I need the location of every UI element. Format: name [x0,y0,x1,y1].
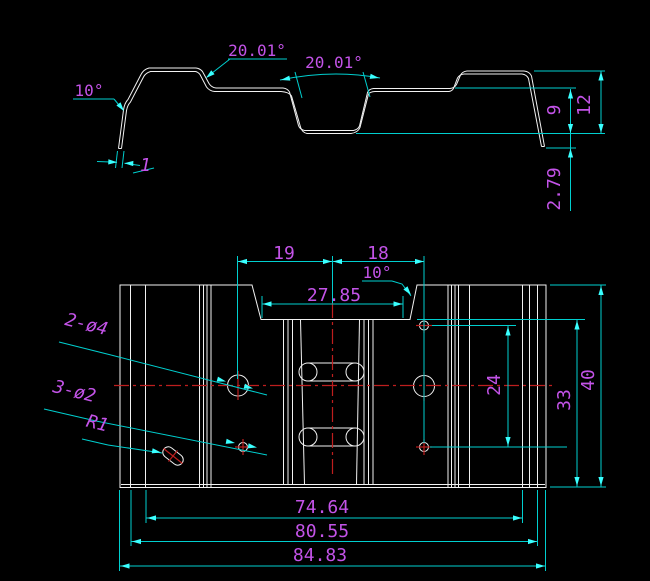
arrowhead [238,259,247,264]
plan-bend-lines [131,285,538,488]
arrowhead [568,124,573,133]
plan-view: 19 18 10° 27.85 2-ø4 3-ø2 R1 24 33 40 74… [44,243,606,571]
profile-outer-line [119,68,545,149]
dim-step-angle: 20.01° [228,41,286,60]
dim-flange-offset: 2.79 [544,167,565,210]
arrowhead [536,563,545,568]
dim-hole-pitch: 24 [484,374,505,396]
arrowhead [323,259,332,264]
arrowhead [280,76,290,83]
arrowhead [574,477,579,486]
dim-hole-height: 33 [554,389,575,411]
cad-drawing-canvas[interactable]: 10° 20.01° 20.01° 1 9 12 2.79 [0,0,650,581]
dim-inner-width: 74.64 [295,497,349,518]
profile-dimension-lines [73,59,605,211]
arrowhead [124,161,133,167]
dim-total-height: 12 [574,94,595,116]
arrowhead [598,286,603,295]
channel-slots [299,363,364,446]
arrowhead [132,539,141,544]
dim-notch-angle: 10° [363,263,392,282]
profile-inner-line [122,72,542,149]
arrowhead [248,443,258,450]
holes [161,321,435,467]
arrowhead [574,321,579,330]
arrowhead [568,149,573,158]
dim-bend-angle: 10° [75,81,104,100]
arrowhead [505,327,510,336]
arrowhead [528,539,537,544]
dim-notch-width: 27.85 [307,285,361,306]
arrowhead [394,301,403,306]
dim-overall-width: 84.83 [293,545,347,566]
arrowhead [415,259,424,264]
callout-large-holes: 2-ø4 [63,309,110,340]
arrowhead [505,437,510,446]
arrowhead [226,439,236,446]
dim-thickness: 1 [140,155,151,176]
dim-inner-height: 9 [544,105,565,116]
arrowhead [568,90,573,99]
arrowhead [598,477,603,486]
drawing-svg: 10° 20.01° 20.01° 1 9 12 2.79 [0,0,650,581]
arrowhead [152,448,162,455]
callout-slot-radius: R1 [84,411,110,437]
arrowhead [121,563,130,568]
arrowhead [598,124,603,133]
arrowhead [598,72,603,81]
profile-view: 10° 20.01° 20.01° 1 9 12 2.79 [73,41,605,211]
dim-left-offset: 19 [273,243,295,264]
arrowhead [263,301,272,306]
dim-mid-width: 80.55 [295,521,349,542]
dim-overall-height: 40 [578,369,599,391]
dim-channel-angle: 20.01° [305,53,363,72]
arrowhead [333,259,342,264]
arrowhead [147,515,156,520]
callout-small-holes: 3-ø2 [50,376,98,407]
arrowhead [513,515,522,520]
dim-right-offset: 18 [367,243,389,264]
